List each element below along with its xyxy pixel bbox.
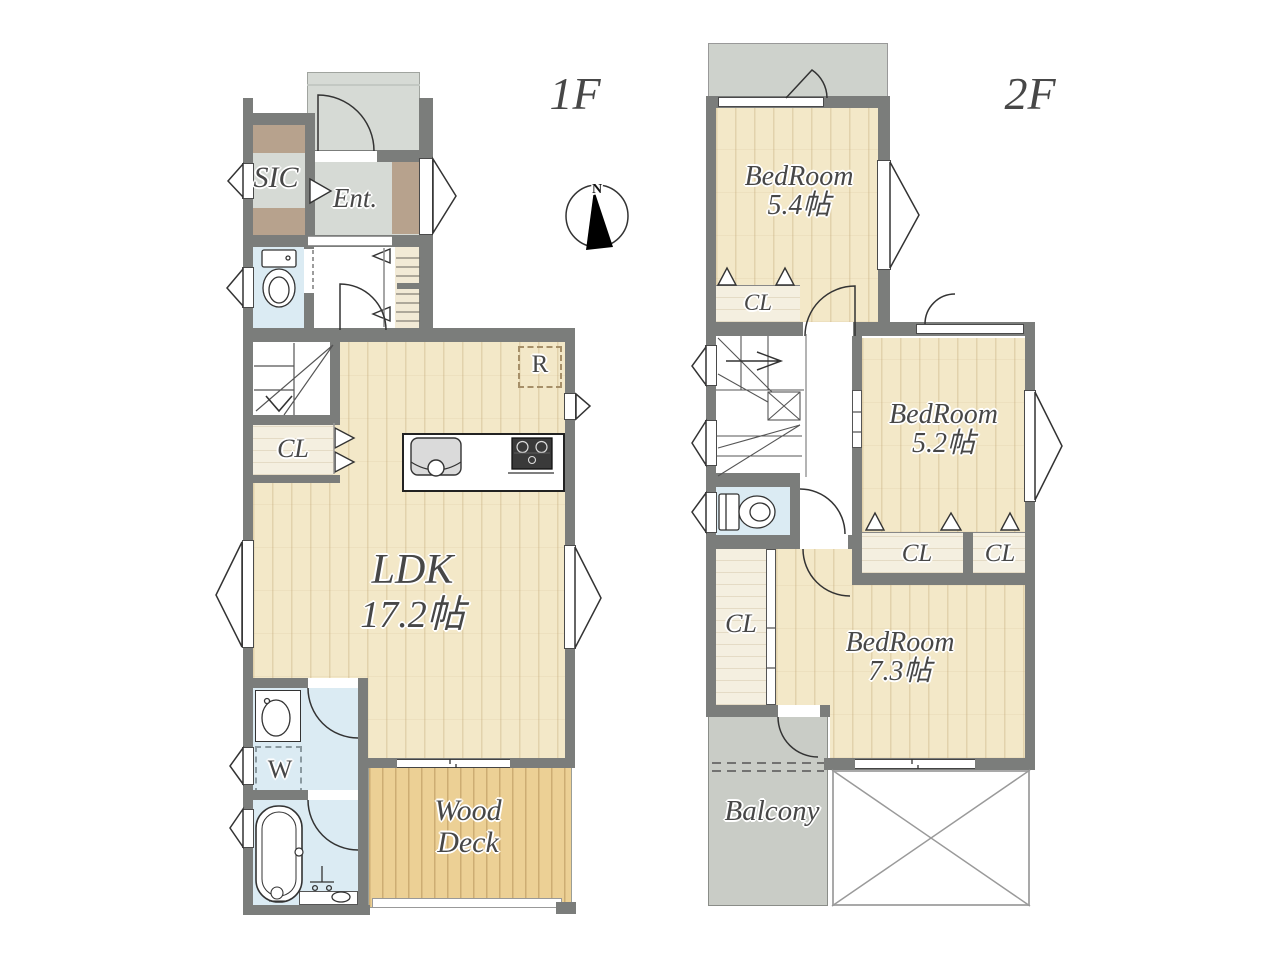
room-label-closet-1f: CL bbox=[256, 435, 330, 462]
wall-segment bbox=[243, 475, 340, 483]
floorplan-canvas: 1F 2F N SIC Ent. CL LDK 17.2帖 R W Wood D… bbox=[0, 0, 1280, 960]
compass-north-label: N bbox=[585, 183, 609, 198]
ldk-size: 17.2帖 bbox=[360, 594, 465, 636]
wall-stub bbox=[556, 902, 576, 914]
sliding-window bbox=[855, 759, 975, 769]
toilet-1f-floor bbox=[253, 247, 305, 328]
kitchen-counter bbox=[402, 433, 565, 492]
wall-segment bbox=[243, 905, 370, 915]
bedroom1-name: BedRoom bbox=[745, 161, 854, 192]
wall-segment bbox=[790, 478, 800, 540]
wood-deck-line1: Wood bbox=[434, 794, 501, 827]
sliding-door bbox=[304, 249, 314, 293]
wood-deck-line2: Deck bbox=[437, 826, 499, 859]
room-label-closet-bedroom2-right: CL bbox=[974, 541, 1026, 567]
sliding-glass-door bbox=[397, 759, 510, 768]
bathroom-floor bbox=[253, 800, 358, 905]
room-label-sic: SIC bbox=[244, 162, 308, 194]
bath-shelf bbox=[299, 891, 358, 905]
sic-floor-lower bbox=[253, 208, 305, 237]
floor2-label: 2F bbox=[985, 70, 1075, 118]
room-label-ldk: LDK 17.2帖 bbox=[315, 548, 510, 636]
entrance-step bbox=[308, 236, 392, 246]
washer-label: W bbox=[262, 756, 298, 783]
floor1-label: 1F bbox=[530, 70, 620, 118]
sic-floor-upper bbox=[253, 125, 305, 153]
bedroom3-name: BedRoom bbox=[846, 627, 955, 658]
plan-symbols-overlay bbox=[0, 0, 1280, 960]
ldk-name: LDK bbox=[372, 547, 454, 593]
void-area bbox=[832, 770, 1030, 906]
window bbox=[718, 97, 824, 107]
wall-segment bbox=[963, 532, 973, 573]
toilet-2f-floor bbox=[716, 487, 790, 537]
window bbox=[242, 267, 254, 308]
wall-segment bbox=[852, 573, 1035, 585]
window bbox=[242, 809, 254, 848]
window bbox=[564, 393, 576, 420]
window bbox=[705, 492, 717, 533]
bedroom2-size: 5.2帖 bbox=[912, 428, 975, 459]
door-opening bbox=[778, 705, 820, 717]
stairs-1f-floor bbox=[253, 342, 333, 415]
wall-segment bbox=[358, 678, 368, 915]
door-opening bbox=[315, 151, 377, 162]
roof-over-porch bbox=[708, 43, 888, 100]
door-opening bbox=[800, 535, 848, 549]
room-label-bedroom2: BedRoom 5.2帖 bbox=[860, 400, 1027, 459]
window bbox=[705, 420, 717, 466]
stairs-strip-floor bbox=[395, 247, 421, 328]
shoe-cabinet bbox=[392, 162, 420, 234]
window bbox=[705, 345, 717, 386]
bedroom3-size: 7.3帖 bbox=[868, 656, 931, 687]
wall-segment bbox=[243, 328, 575, 342]
room-label-closet-bedroom2-left: CL bbox=[888, 541, 946, 567]
room-label-hall-closet: CL bbox=[710, 610, 772, 637]
window bbox=[242, 540, 254, 648]
room-label-balcony: Balcony bbox=[706, 796, 838, 826]
door-opening bbox=[803, 322, 853, 336]
wall-segment bbox=[706, 473, 800, 487]
porch-step-line bbox=[307, 84, 420, 86]
wall-segment bbox=[330, 342, 340, 415]
hall-2f-floor bbox=[716, 334, 855, 477]
wall-segment bbox=[243, 113, 315, 125]
room-label-wood-deck: Wood Deck bbox=[398, 795, 538, 858]
washroom-sink-unit bbox=[255, 690, 301, 742]
room-label-closet-bedroom1: CL bbox=[722, 291, 794, 315]
door-opening bbox=[308, 790, 358, 800]
bedroom2-name: BedRoom bbox=[889, 399, 998, 430]
window bbox=[564, 545, 576, 649]
door-opening bbox=[308, 678, 358, 688]
wall-segment bbox=[243, 415, 340, 425]
window bbox=[242, 747, 254, 785]
refrigerator-label: R bbox=[522, 352, 558, 378]
room-label-bedroom3: BedRoom 7.3帖 bbox=[798, 628, 1002, 687]
room-label-entrance: Ent. bbox=[318, 184, 392, 212]
room-label-bedroom1: BedRoom 5.4帖 bbox=[718, 162, 880, 221]
window bbox=[916, 324, 1024, 334]
window bbox=[419, 158, 433, 235]
bedroom1-size: 5.4帖 bbox=[767, 190, 830, 221]
wood-deck-edge bbox=[372, 898, 562, 908]
